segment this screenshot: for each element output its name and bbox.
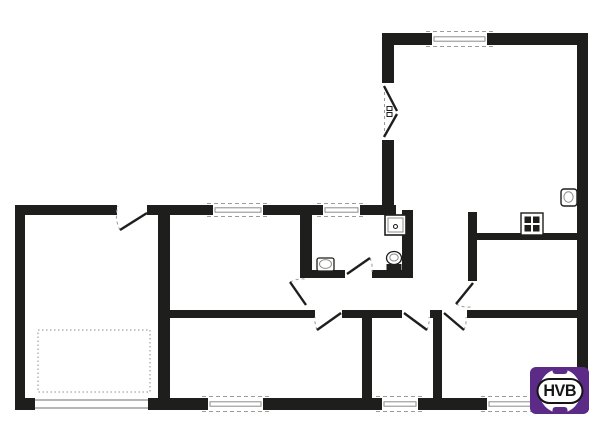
toilet-tank bbox=[387, 264, 402, 271]
wall-livingroom-left-lower bbox=[382, 140, 394, 213]
wall-outer-top-3 bbox=[263, 205, 323, 215]
bedroom-1-door-swing bbox=[315, 317, 317, 330]
hvb-logo-notch-bottom bbox=[552, 407, 567, 414]
hvb-logo-notch-top bbox=[552, 367, 567, 374]
wall-outer-bottom-3 bbox=[263, 398, 382, 410]
livingroom-double-door-handle-1 bbox=[387, 107, 392, 111]
floor-plan-page: HVB bbox=[0, 0, 600, 426]
room-left-door-leaf bbox=[290, 282, 306, 305]
bedroom-1-door-leaf bbox=[317, 313, 341, 330]
wall-livingroom-left-upper bbox=[382, 33, 394, 83]
bathroom-door-swing bbox=[370, 258, 372, 272]
wall-outer-bottom-2 bbox=[148, 398, 208, 410]
bottom-right-room-door-swing bbox=[464, 317, 466, 330]
hvb-logo: HVB bbox=[530, 367, 589, 414]
stove-plate-1 bbox=[525, 217, 532, 224]
window-bedroom-2-frame bbox=[384, 402, 416, 406]
bathroom-door-leaf bbox=[347, 258, 370, 274]
garage-entry-door-swing bbox=[116, 206, 120, 230]
floor-plan-svg bbox=[0, 0, 600, 426]
toilet-bowl bbox=[387, 252, 402, 265]
bottom-right-room-door-leaf bbox=[444, 313, 464, 330]
wall-livingroom-top-right bbox=[487, 33, 588, 45]
wall-garage-separator bbox=[158, 215, 170, 398]
wall-hallway-bottom-4 bbox=[467, 310, 577, 318]
wall-bedroom-separator-1 bbox=[362, 318, 372, 398]
kitchen-door-leaf bbox=[456, 283, 473, 304]
wall-kitchen-divider bbox=[468, 212, 477, 281]
wall-hallway-bottom-1 bbox=[170, 310, 315, 318]
stove-plate-3 bbox=[525, 225, 532, 232]
livingroom-double-door-leaf2 bbox=[384, 114, 397, 137]
window-room-left-frame bbox=[215, 208, 261, 212]
hvb-logo-text: HVB bbox=[543, 382, 576, 399]
window-bedroom-1-frame bbox=[210, 402, 261, 406]
wall-outer-right bbox=[577, 33, 588, 412]
stove-plate-2 bbox=[533, 217, 540, 224]
window-livingroom-top-frame bbox=[434, 37, 485, 41]
wall-bathroom-left bbox=[300, 215, 312, 278]
wall-outer-top-2 bbox=[147, 205, 213, 215]
room-left-door-swing bbox=[290, 279, 305, 282]
kitchen-door-swing bbox=[456, 304, 471, 307]
livingroom-double-door-handle-2 bbox=[387, 113, 392, 117]
wall-hallway-bottom-3 bbox=[430, 310, 442, 318]
garage-entry-door-leaf bbox=[120, 213, 147, 230]
wall-bedroom-separator-2 bbox=[433, 318, 442, 398]
wall-outer-bottom-1 bbox=[15, 398, 35, 410]
wall-outer-left bbox=[15, 205, 25, 410]
wall-hallway-bottom-2 bbox=[342, 310, 402, 318]
garage-floor-marking bbox=[38, 330, 150, 392]
wall-outer-top-1 bbox=[15, 205, 117, 215]
wall-outer-bottom-4 bbox=[418, 398, 487, 410]
bedroom-2-door-leaf bbox=[404, 313, 427, 330]
window-bathroom-frame bbox=[325, 208, 358, 212]
hvb-logo-badge: HVB bbox=[536, 378, 583, 404]
bedroom-2-door-swing bbox=[427, 317, 429, 330]
stove-plate-4 bbox=[533, 225, 540, 232]
stove bbox=[521, 213, 543, 235]
